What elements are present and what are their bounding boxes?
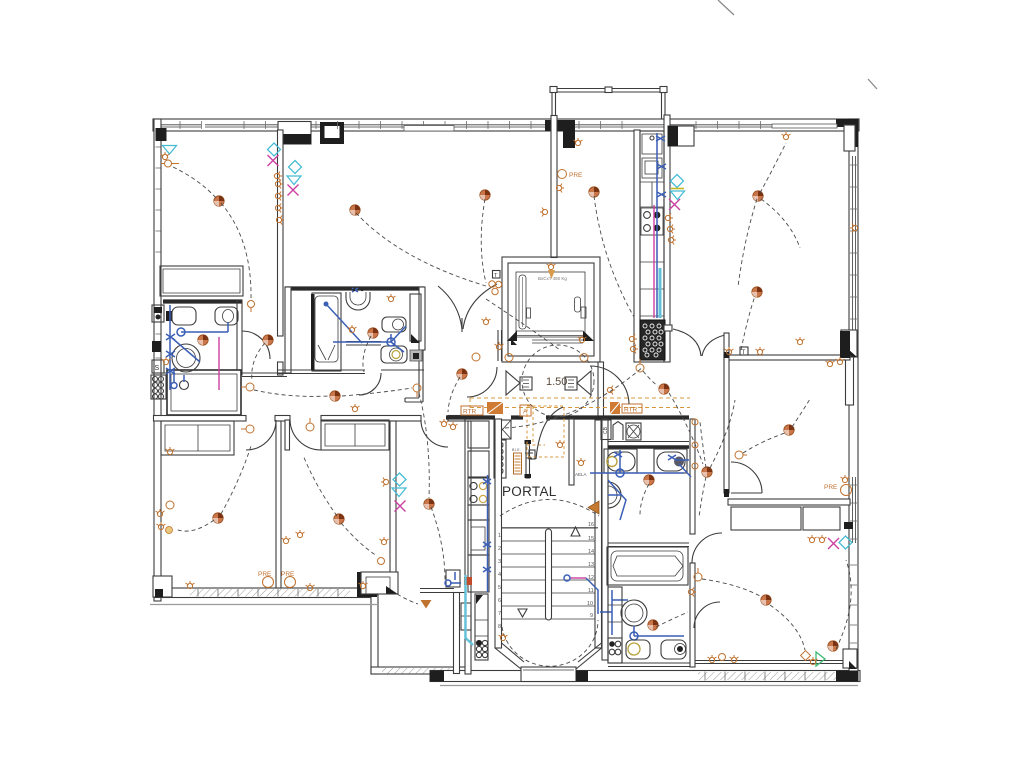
svg-text:13: 13 xyxy=(588,562,594,568)
svg-text:4: 4 xyxy=(498,572,501,578)
svg-text:1.50: 1.50 xyxy=(546,376,567,388)
svg-text:PRE: PRE xyxy=(824,484,838,491)
svg-text:8: 8 xyxy=(498,624,501,630)
svg-text:PRE: PRE xyxy=(569,172,583,179)
svg-text:16: 16 xyxy=(588,522,594,528)
svg-text:PRE: PRE xyxy=(281,571,295,578)
svg-text:15: 15 xyxy=(588,536,594,542)
svg-text:B.I.E.: B.I.E. xyxy=(512,448,521,452)
svg-text:5: 5 xyxy=(498,585,501,591)
svg-text:BxCxT 450 Kg: BxCxT 450 Kg xyxy=(538,276,567,281)
svg-text:T: T xyxy=(742,350,746,356)
svg-text:10: 10 xyxy=(587,601,593,607)
svg-text:AELA: AELA xyxy=(575,472,587,477)
svg-text:1: 1 xyxy=(498,533,501,539)
svg-text:9: 9 xyxy=(590,613,593,619)
svg-text:CB: CB xyxy=(603,426,609,434)
svg-text:6: 6 xyxy=(498,598,501,604)
svg-text:14: 14 xyxy=(588,549,594,555)
svg-text:RTR: RTR xyxy=(624,407,638,414)
svg-text:S: S xyxy=(155,365,160,372)
svg-text:3: 3 xyxy=(498,559,501,565)
svg-text:PRE: PRE xyxy=(258,571,272,578)
svg-text:11: 11 xyxy=(588,588,594,594)
svg-text:PORTAL: PORTAL xyxy=(502,484,557,499)
svg-text:2: 2 xyxy=(498,546,501,552)
svg-text:7: 7 xyxy=(498,611,501,617)
svg-text:RTR: RTR xyxy=(463,409,477,416)
